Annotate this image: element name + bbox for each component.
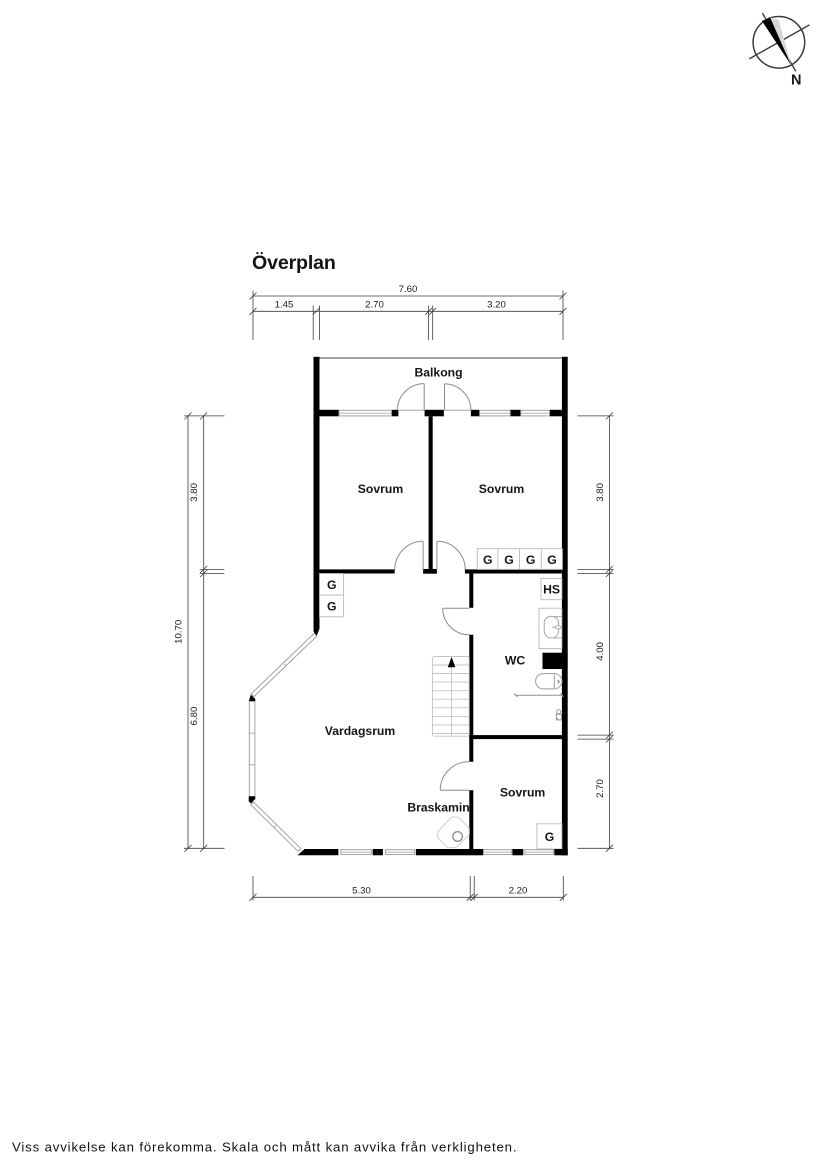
svg-text:WC: WC bbox=[505, 653, 526, 667]
svg-text:10.70: 10.70 bbox=[174, 620, 185, 644]
svg-text:2.70: 2.70 bbox=[365, 300, 384, 311]
svg-text:3.80: 3.80 bbox=[595, 483, 606, 502]
svg-text:N: N bbox=[791, 73, 801, 89]
svg-text:7.60: 7.60 bbox=[399, 284, 418, 295]
svg-text:Vardagsrum: Vardagsrum bbox=[325, 724, 396, 738]
svg-text:2.20: 2.20 bbox=[509, 885, 528, 896]
svg-text:Överplan: Överplan bbox=[252, 251, 336, 274]
svg-text:Sovrum: Sovrum bbox=[479, 482, 525, 496]
svg-text:G: G bbox=[545, 830, 554, 844]
svg-text:1.45: 1.45 bbox=[275, 300, 294, 311]
svg-text:G: G bbox=[327, 578, 336, 592]
svg-text:3.20: 3.20 bbox=[487, 300, 506, 311]
svg-text:Viss avvikelse kan förekomma.: Viss avvikelse kan förekomma. Skala och … bbox=[12, 1140, 517, 1155]
svg-text:3.80: 3.80 bbox=[189, 483, 200, 502]
svg-text:G: G bbox=[327, 600, 336, 614]
svg-text:HS: HS bbox=[543, 582, 560, 596]
svg-text:2.70: 2.70 bbox=[595, 779, 606, 798]
svg-text:4.00: 4.00 bbox=[595, 642, 606, 661]
svg-text:Balkong: Balkong bbox=[414, 365, 462, 379]
svg-text:G: G bbox=[483, 553, 492, 567]
svg-text:5.30: 5.30 bbox=[352, 885, 371, 896]
svg-text:Sovrum: Sovrum bbox=[500, 786, 546, 800]
svg-text:G: G bbox=[526, 553, 535, 567]
svg-text:Sovrum: Sovrum bbox=[358, 482, 404, 496]
svg-text:Braskamin: Braskamin bbox=[407, 800, 469, 814]
svg-text:G: G bbox=[504, 553, 513, 567]
svg-text:G: G bbox=[547, 553, 556, 567]
svg-text:6.80: 6.80 bbox=[189, 707, 200, 726]
